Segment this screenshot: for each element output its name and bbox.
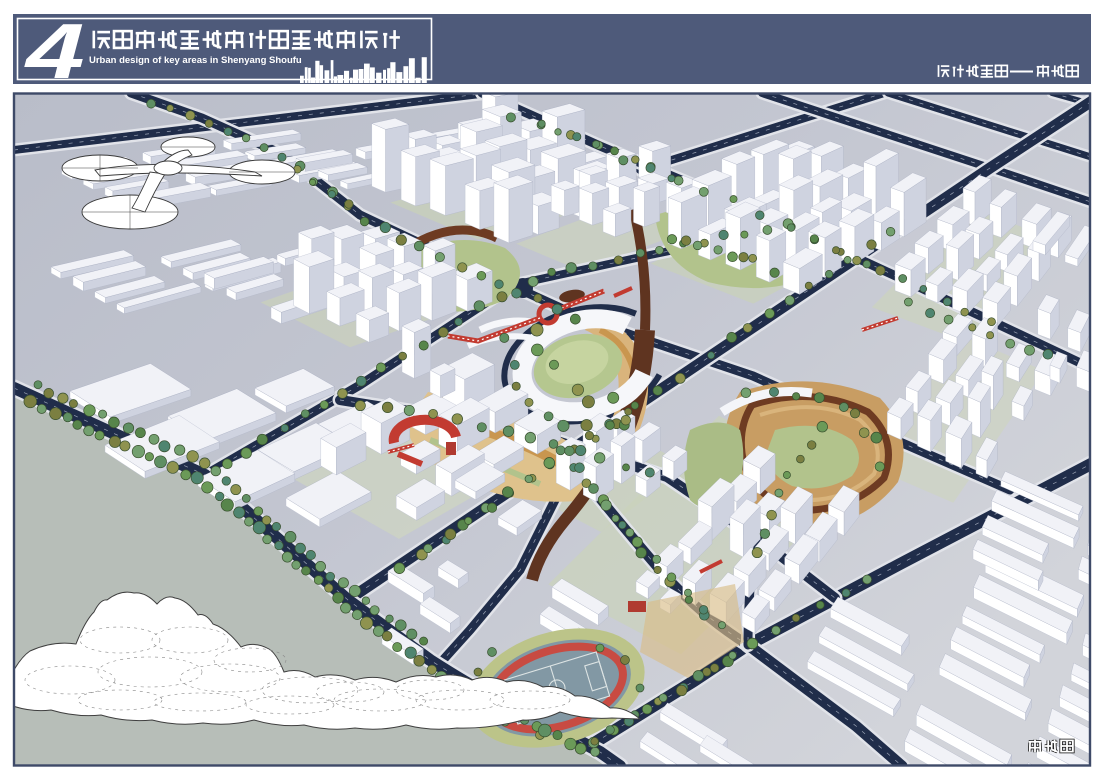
svg-text:Urban design of key areas in S: Urban design of key areas in Shenyang Sh…: [89, 55, 302, 66]
svg-text:4: 4: [24, 7, 85, 95]
